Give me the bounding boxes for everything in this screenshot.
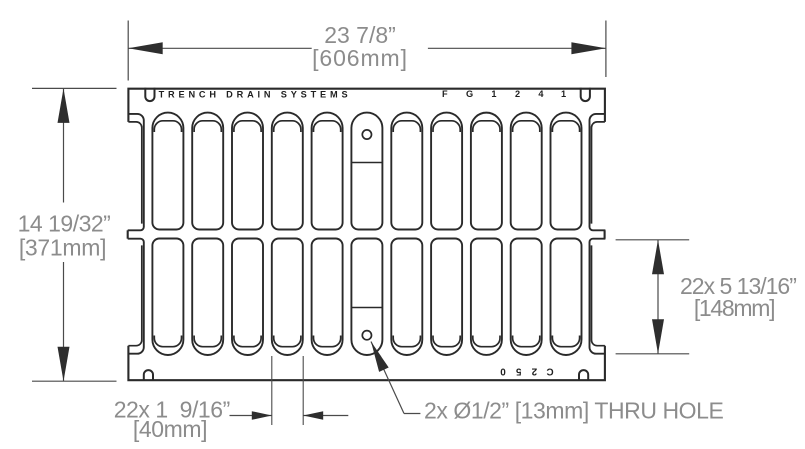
svg-text:14 19/32”: 14 19/32” xyxy=(18,211,111,237)
svg-text:G: G xyxy=(466,89,473,99)
svg-text:1: 1 xyxy=(491,89,496,99)
svg-text:4: 4 xyxy=(538,89,544,99)
svg-text:2: 2 xyxy=(531,366,537,377)
svg-text:C: C xyxy=(547,366,554,377)
svg-text:TRENCH DRAIN SYSTEMS: TRENCH DRAIN SYSTEMS xyxy=(159,90,348,100)
svg-text:[40mm]: [40mm] xyxy=(133,416,207,442)
svg-text:[371mm]: [371mm] xyxy=(19,235,106,261)
svg-text:F: F xyxy=(442,89,448,99)
svg-text:1: 1 xyxy=(561,89,566,99)
svg-text:2: 2 xyxy=(515,89,520,99)
svg-text:[148mm]: [148mm] xyxy=(694,295,774,321)
svg-text:[606mm]: [606mm] xyxy=(312,45,408,71)
svg-text:5: 5 xyxy=(515,366,521,377)
svg-text:2x Ø1/2” [13mm] THRU HOLE: 2x Ø1/2” [13mm] THRU HOLE xyxy=(424,398,723,424)
svg-text:0: 0 xyxy=(500,366,506,377)
